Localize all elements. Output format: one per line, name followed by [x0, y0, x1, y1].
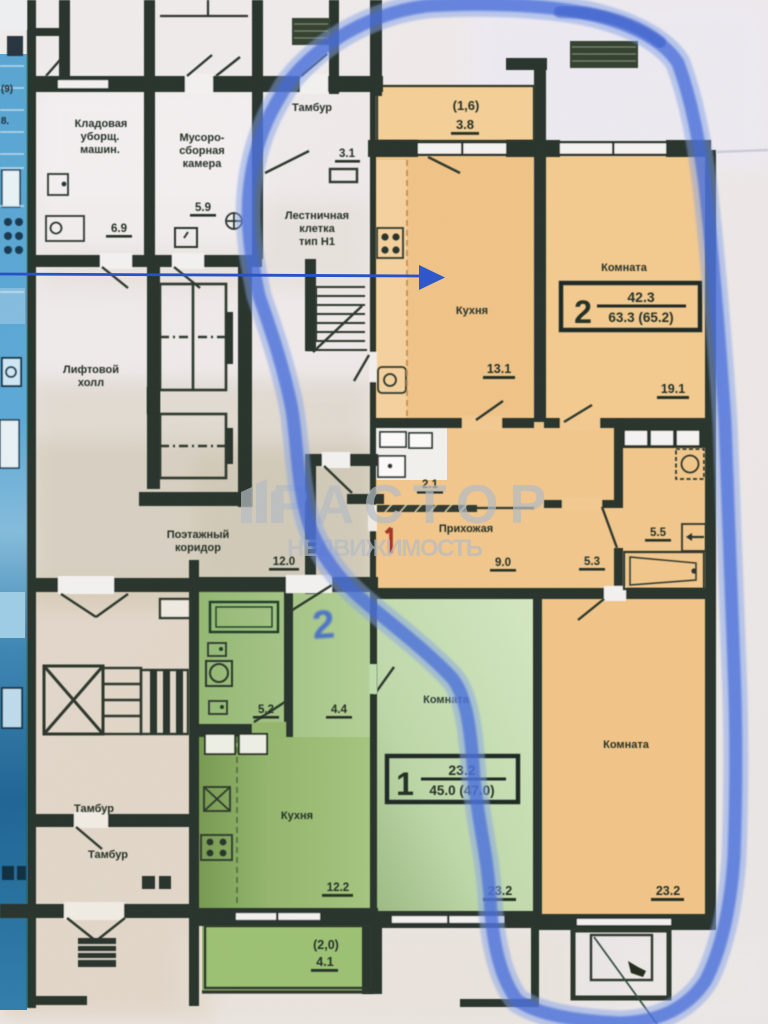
svg-text:8.: 8.: [1, 116, 10, 127]
svg-text:4.4: 4.4: [331, 704, 348, 716]
svg-text:9.0: 9.0: [495, 557, 511, 569]
svg-text:камера: камера: [183, 158, 223, 170]
svg-text:Кладовая: Кладовая: [75, 118, 128, 130]
svg-text:машин.: машин.: [80, 144, 120, 156]
svg-text:уборщ.: уборщ.: [81, 131, 120, 143]
svg-text:тип Н1: тип Н1: [299, 236, 335, 248]
svg-text:19.1: 19.1: [661, 382, 685, 396]
svg-text:Комната: Комната: [603, 739, 650, 751]
svg-text:Тамбур: Тамбур: [74, 803, 114, 815]
svg-text:Кухня: Кухня: [281, 810, 313, 822]
svg-text:2: 2: [574, 294, 592, 330]
svg-text:Лестничная: Лестничная: [285, 210, 349, 222]
svg-text:3.1: 3.1: [339, 148, 356, 160]
svg-text:1: 1: [396, 766, 414, 802]
svg-text:Комната: Комната: [601, 262, 648, 274]
svg-text:42.3: 42.3: [627, 289, 654, 305]
svg-text:Поэтажный: Поэтажный: [167, 529, 230, 541]
svg-text:Кухня: Кухня: [456, 305, 488, 317]
svg-text:Тамбур: Тамбур: [292, 102, 332, 114]
svg-text:13.1: 13.1: [487, 362, 511, 376]
svg-text:12.2: 12.2: [327, 882, 349, 894]
svg-text:63.3 (65.2): 63.3 (65.2): [608, 310, 673, 325]
svg-text:23.2: 23.2: [656, 884, 680, 898]
svg-text:4.1: 4.1: [316, 955, 333, 969]
svg-text:(1,6): (1,6): [453, 98, 480, 113]
svg-text:6.9: 6.9: [111, 223, 127, 235]
svg-text:холл: холл: [78, 377, 104, 389]
svg-text:5.2: 5.2: [258, 704, 274, 716]
svg-text:Тамбур: Тамбур: [88, 849, 128, 861]
svg-text:2: 2: [311, 602, 336, 647]
svg-text:5.3: 5.3: [584, 556, 600, 568]
svg-text:Лифтовой: Лифтовой: [63, 364, 119, 376]
svg-text:сборная: сборная: [179, 145, 224, 157]
svg-text:5.5: 5.5: [650, 527, 667, 539]
svg-text:Мусоро-: Мусоро-: [180, 132, 225, 144]
svg-text:клетка: клетка: [299, 223, 335, 235]
svg-text:3.8: 3.8: [456, 117, 474, 132]
svg-text:5.9: 5.9: [195, 202, 211, 214]
svg-text:(2,0): (2,0): [313, 938, 339, 952]
svg-text:(9): (9): [1, 84, 13, 95]
svg-text:коридор: коридор: [175, 542, 221, 554]
